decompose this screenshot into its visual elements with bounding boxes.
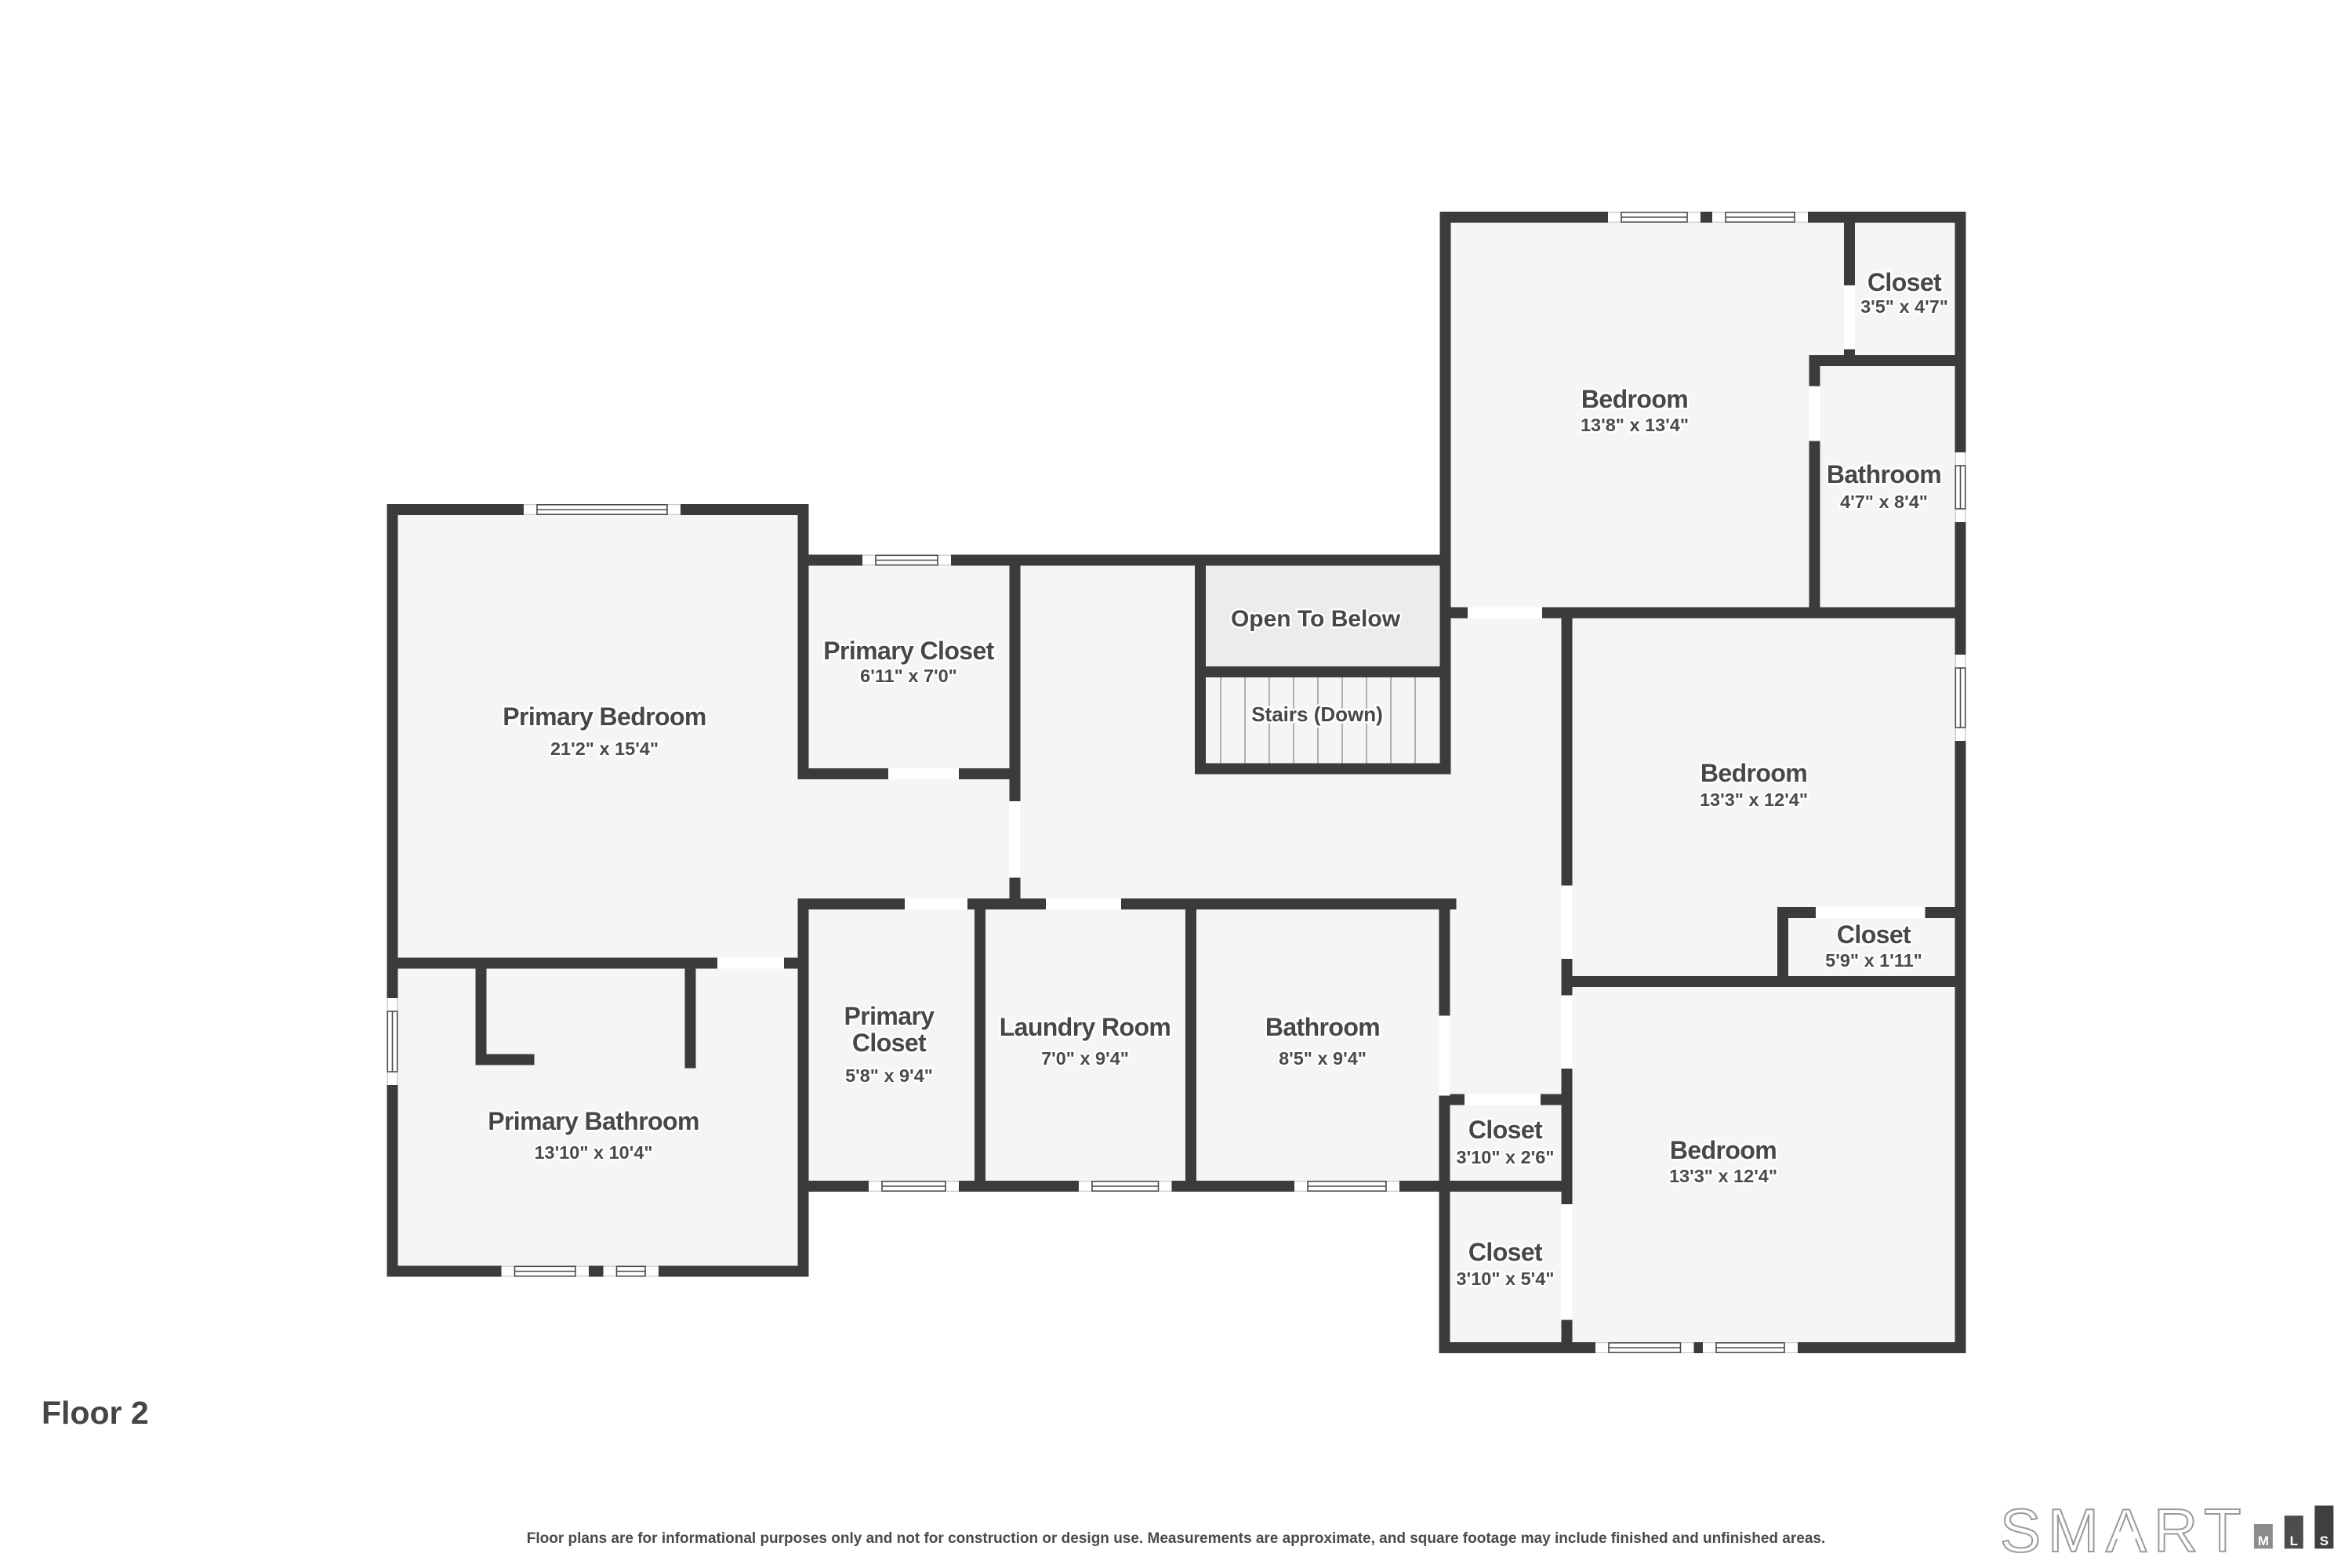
svg-text:3'5" x 4'7": 3'5" x 4'7" <box>1860 296 1948 317</box>
svg-text:Primary Closet: Primary Closet <box>823 637 994 665</box>
svg-text:13'3" x 12'4": 13'3" x 12'4" <box>1700 789 1808 810</box>
svg-text:Open To Below: Open To Below <box>1231 606 1401 632</box>
svg-text:Primary Bedroom: Primary Bedroom <box>503 702 706 731</box>
svg-text:S: S <box>2320 1534 2328 1548</box>
svg-text:7'0" x 9'4": 7'0" x 9'4" <box>1041 1048 1129 1069</box>
svg-text:21'2" x 15'4": 21'2" x 15'4" <box>550 739 659 759</box>
svg-text:M: M <box>2258 1534 2269 1548</box>
svg-text:8'5" x 9'4": 8'5" x 9'4" <box>1279 1048 1367 1069</box>
svg-text:Closet: Closet <box>1468 1116 1543 1144</box>
svg-text:Closet: Closet <box>852 1029 927 1057</box>
svg-text:Closet: Closet <box>1867 268 1942 296</box>
svg-text:Bathroom: Bathroom <box>1827 460 1941 488</box>
svg-text:Bathroom: Bathroom <box>1265 1013 1380 1041</box>
svg-text:Laundry Room: Laundry Room <box>1000 1013 1171 1041</box>
svg-text:4'7" x 8'4": 4'7" x 8'4" <box>1840 492 1928 512</box>
svg-text:L: L <box>2290 1534 2298 1548</box>
svg-text:Bedroom: Bedroom <box>1670 1136 1777 1164</box>
svg-text:Stairs (Down): Stairs (Down) <box>1251 702 1383 726</box>
svg-text:5'8" x 9'4": 5'8" x 9'4" <box>845 1065 933 1086</box>
svg-text:6'11" x 7'0": 6'11" x 7'0" <box>860 666 957 686</box>
svg-text:13'3" x 12'4": 13'3" x 12'4" <box>1669 1166 1777 1186</box>
svg-text:Floor 2: Floor 2 <box>42 1395 149 1431</box>
svg-text:3'10" x 5'4": 3'10" x 5'4" <box>1457 1269 1555 1289</box>
svg-text:Primary: Primary <box>844 1002 935 1030</box>
svg-text:Bedroom: Bedroom <box>1700 759 1807 787</box>
svg-text:Primary Bathroom: Primary Bathroom <box>488 1107 699 1135</box>
svg-text:Floor plans are for informatio: Floor plans are for informational purpos… <box>527 1530 1825 1547</box>
svg-text:3'10" x 2'6": 3'10" x 2'6" <box>1457 1147 1555 1167</box>
svg-text:Bedroom: Bedroom <box>1581 385 1688 413</box>
svg-text:Closet: Closet <box>1837 920 1911 949</box>
svg-text:Closet: Closet <box>1468 1238 1543 1266</box>
svg-text:SMART: SMART <box>2000 1496 2249 1565</box>
svg-text:5'9" x 1'11": 5'9" x 1'11" <box>1825 950 1922 971</box>
svg-text:13'8" x 13'4": 13'8" x 13'4" <box>1581 415 1689 435</box>
svg-text:13'10" x 10'4": 13'10" x 10'4" <box>534 1142 652 1163</box>
